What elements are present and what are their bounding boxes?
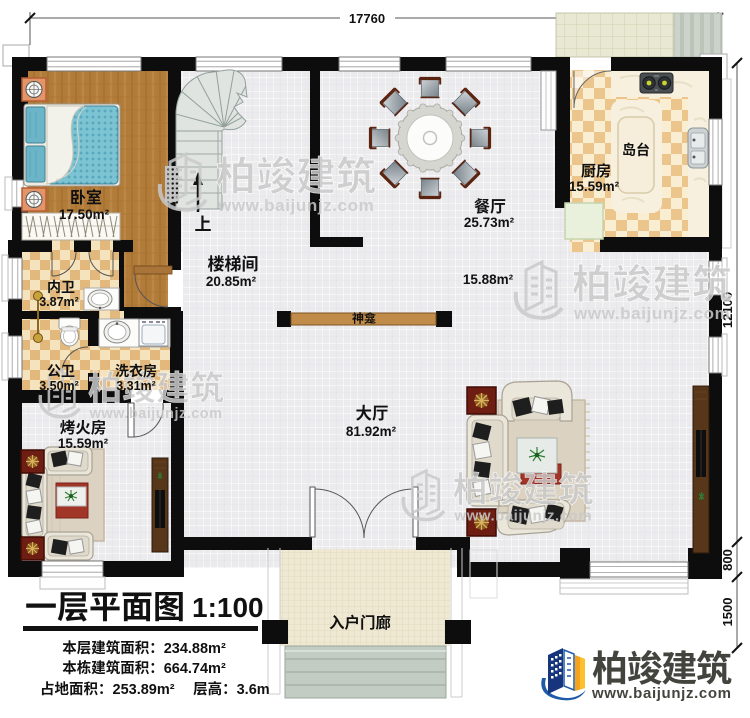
svg-text:3.87m²: 3.87m² bbox=[39, 291, 79, 310]
svg-text:上: 上 bbox=[195, 210, 212, 235]
svg-text:本栋建筑面积：664.74m²: 本栋建筑面积：664.74m² bbox=[62, 657, 226, 678]
svg-text:占地面积：253.89m² 层高：3.6m: 占地面积：253.89m² 层高：3.6m bbox=[40, 678, 270, 699]
svg-text:800: 800 bbox=[720, 549, 735, 571]
svg-text:20.85m²: 20.85m² bbox=[206, 270, 257, 290]
svg-text:3.50m²: 3.50m² bbox=[39, 375, 79, 394]
svg-text:81.92m²: 81.92m² bbox=[346, 420, 397, 440]
svg-text:1500: 1500 bbox=[720, 598, 735, 627]
svg-text:15.88m²: 15.88m² bbox=[463, 268, 514, 288]
svg-text:1:100: 1:100 bbox=[192, 592, 264, 623]
svg-text:3.31m²: 3.31m² bbox=[116, 375, 156, 394]
svg-text:17760: 17760 bbox=[349, 11, 385, 26]
svg-text:25.73m²: 25.73m² bbox=[464, 211, 515, 231]
svg-text:17.50m²: 17.50m² bbox=[59, 203, 110, 223]
svg-text:15.59m²: 15.59m² bbox=[569, 175, 620, 195]
svg-text:入户门廊: 入户门廊 bbox=[329, 611, 391, 633]
svg-text:岛台: 岛台 bbox=[622, 140, 650, 160]
svg-text:www.baijunjz.com: www.baijunjz.com bbox=[591, 685, 732, 702]
svg-text:本层建筑面积：234.88m²: 本层建筑面积：234.88m² bbox=[62, 637, 226, 658]
svg-text:一层平面图: 一层平面图 bbox=[25, 582, 185, 628]
svg-text:15.59m²: 15.59m² bbox=[58, 432, 109, 452]
svg-text:神龛: 神龛 bbox=[352, 310, 376, 327]
